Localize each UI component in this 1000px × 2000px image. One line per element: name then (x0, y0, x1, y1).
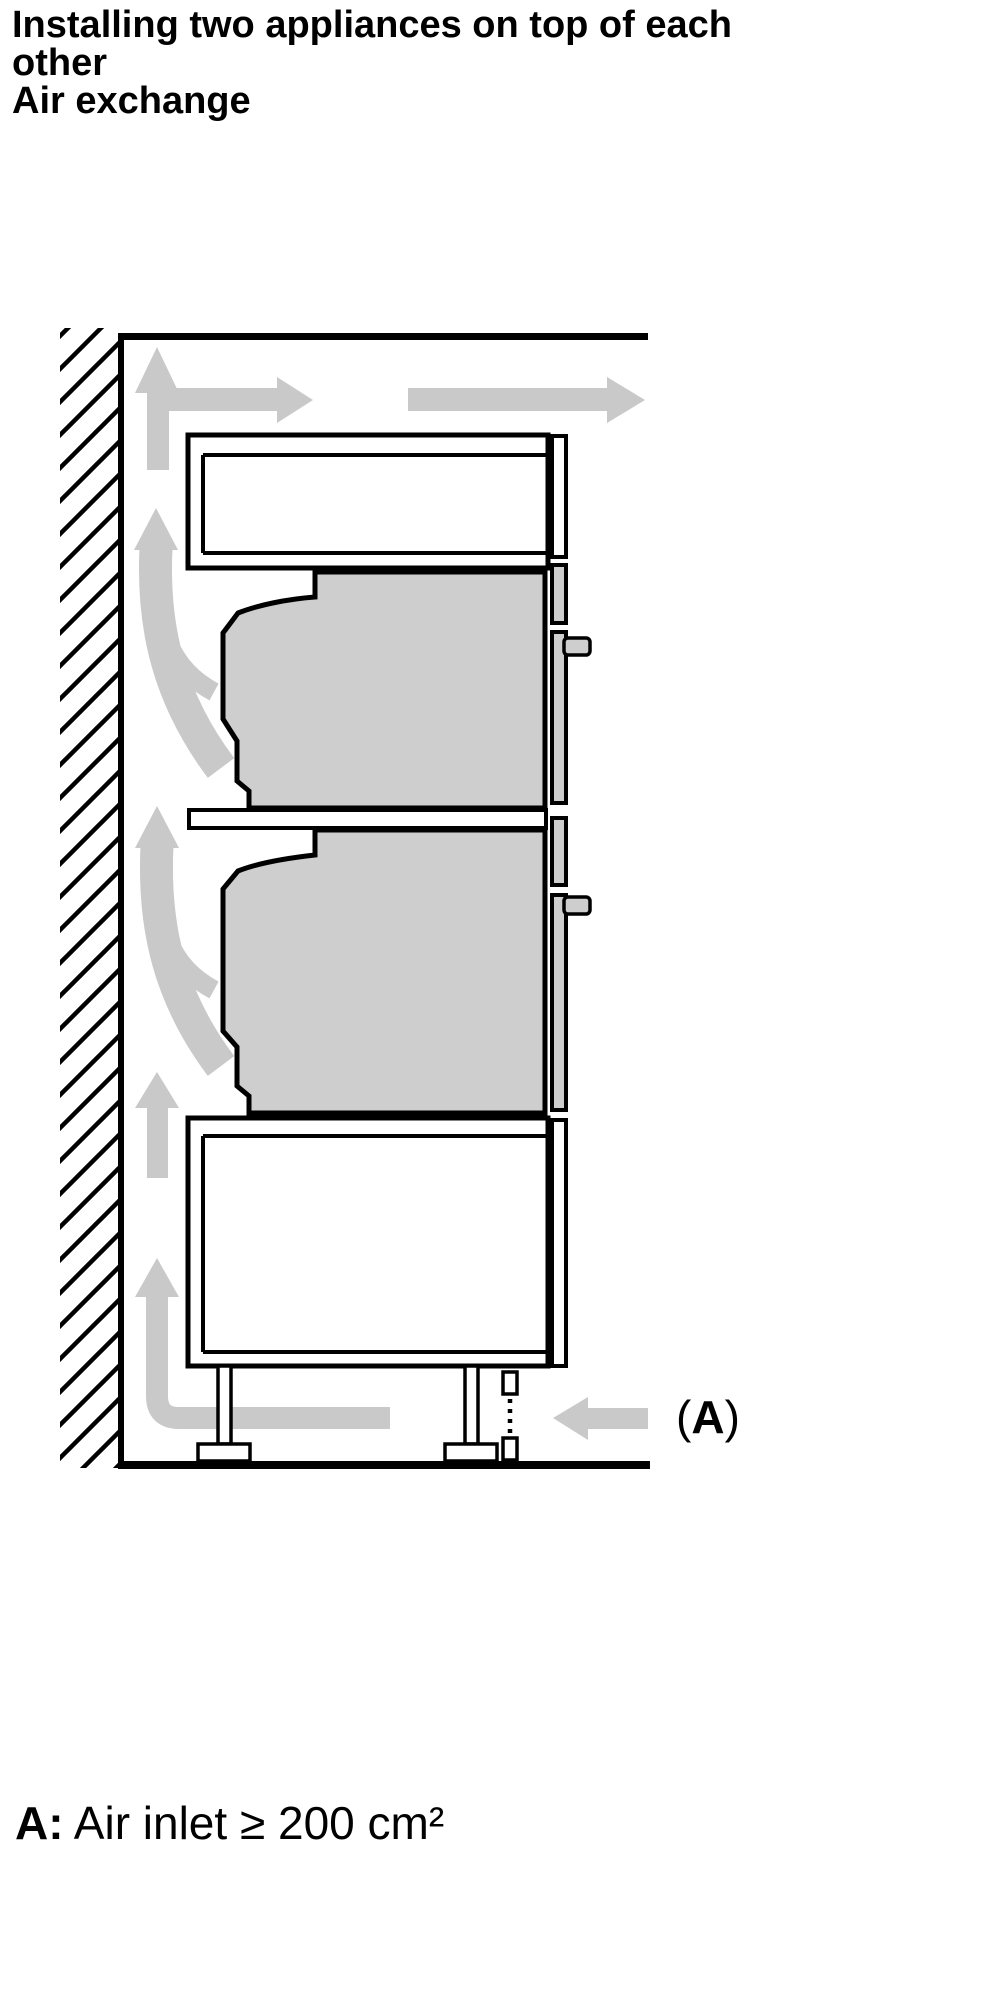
inlet-label-letter: A (691, 1391, 724, 1443)
manual-page: Installing two appliances on top of each… (0, 0, 1000, 2000)
divider-shelf (189, 810, 546, 828)
lower-oven-body (223, 830, 545, 1113)
plinth-vent-bottom-marker (503, 1438, 517, 1460)
inlet-label-close-paren: ) (725, 1391, 740, 1443)
cabinet-leg (465, 1366, 478, 1444)
exhaust-right-arrow-icon (165, 377, 313, 423)
exhaust-out-arrow-icon (408, 377, 645, 423)
inlet-label-open-paren: ( (676, 1391, 691, 1443)
cabinet-foot (198, 1444, 250, 1461)
riser-up-arrow-icon (135, 1072, 179, 1178)
plinth-vent-marker (503, 1372, 517, 1460)
ceiling-line (118, 333, 648, 340)
compartment-front-strip (552, 436, 566, 557)
upper-oven-body (223, 572, 545, 808)
cabinet-foot (445, 1444, 497, 1461)
upper-compartment (188, 435, 566, 568)
cabinet-leg (218, 1366, 231, 1444)
caption-text: Air inlet ≥ 200 cm² (64, 1797, 445, 1849)
lower-oven-door-strip (552, 895, 566, 1110)
circulation-arrow-lower-icon (135, 806, 221, 1066)
upper-oven-door-strip (552, 632, 566, 803)
oven-handle-icon (564, 897, 590, 914)
air-inlet-caption: A: Air inlet ≥ 200 cm² (15, 1798, 444, 1848)
caption-key: A: (15, 1797, 64, 1849)
air-exchange-diagram (0, 0, 1000, 2000)
air-inlet-left-arrow-icon (553, 1397, 648, 1440)
lower-oven (223, 818, 590, 1113)
upper-oven (223, 565, 590, 808)
lower-oven-vent-strip (552, 818, 566, 885)
wall-hatch-icon (60, 328, 124, 1468)
oven-handle-icon (564, 638, 590, 655)
upper-oven-vent-strip (552, 565, 566, 623)
plinth-vent-top-marker (503, 1372, 517, 1394)
air-inlet-label: (A) (676, 1392, 740, 1442)
cabinet-front-strip (552, 1120, 566, 1366)
